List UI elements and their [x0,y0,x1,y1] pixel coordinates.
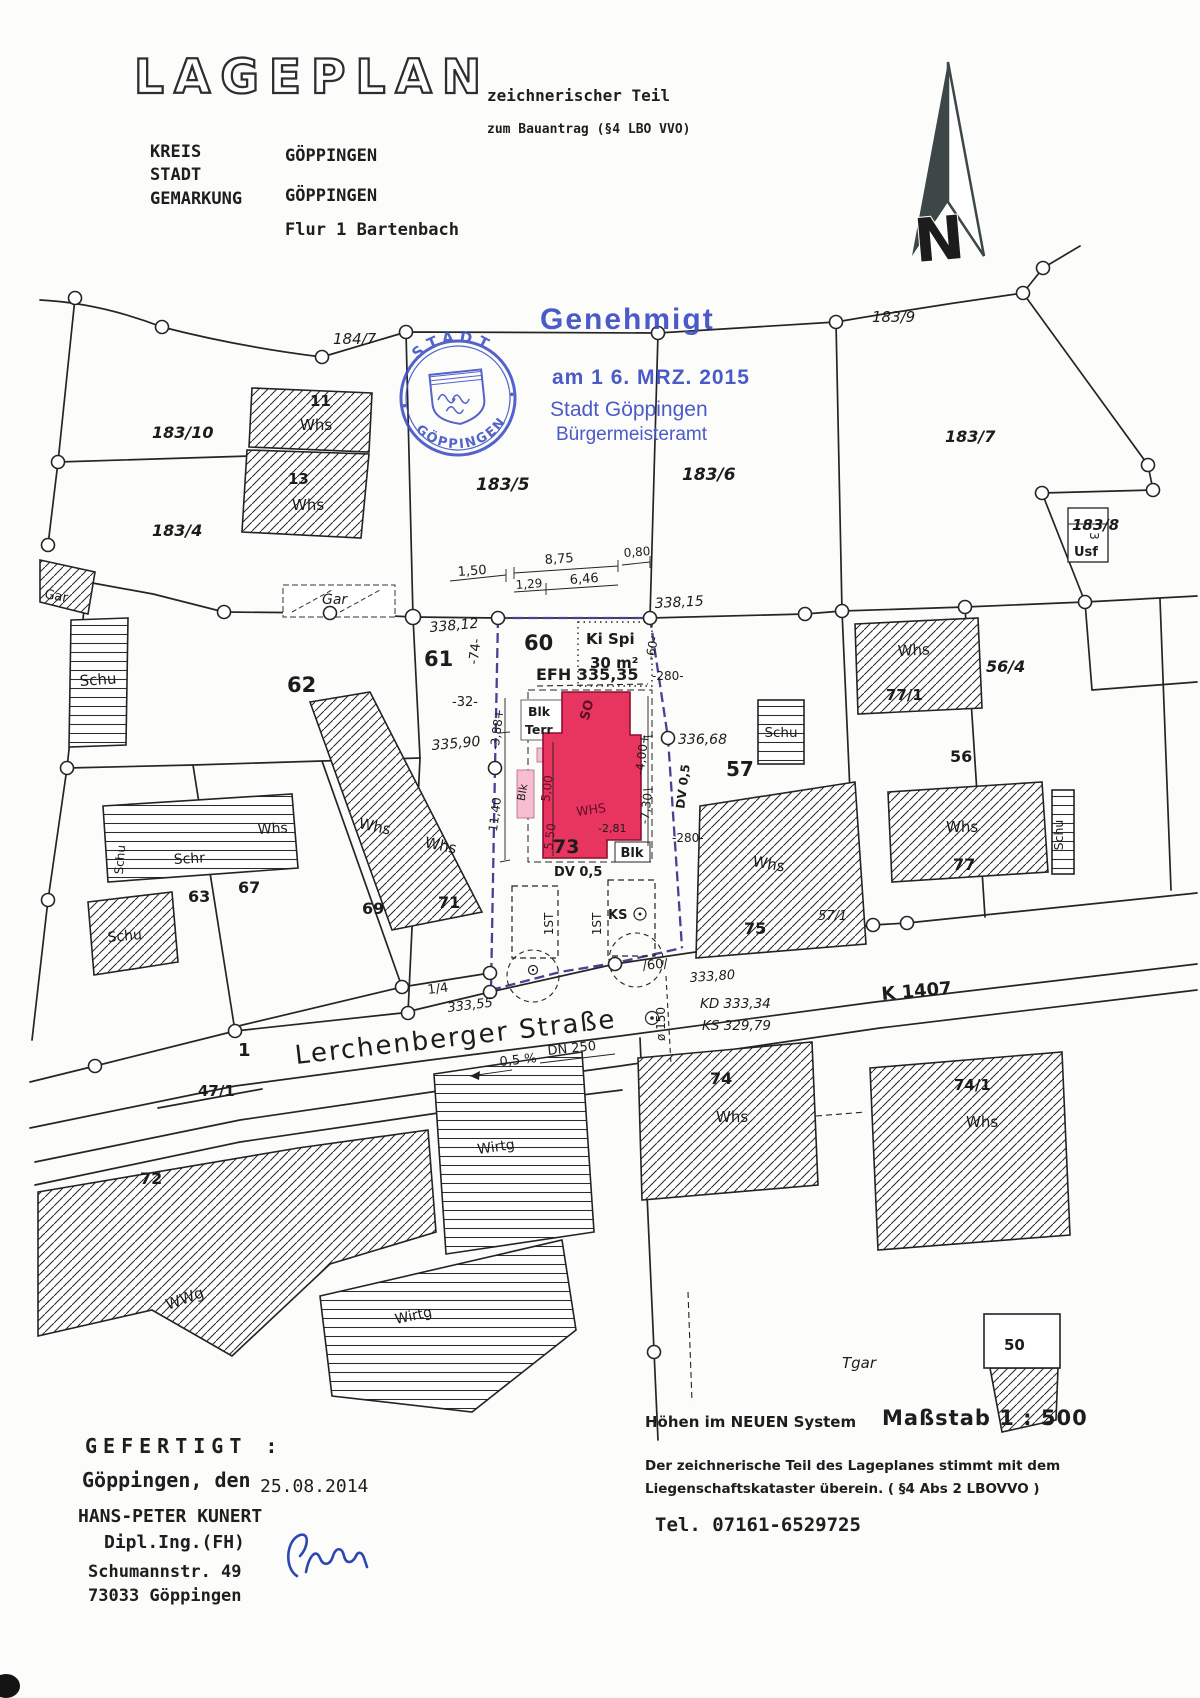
schu-label: Schu [79,669,117,690]
schu-label: Schu [764,725,797,741]
dim-2-81: -2,81 [598,822,626,835]
parcel-74-label: 74 [710,1069,732,1088]
signature-stroke [288,1535,367,1576]
kispi-label: Ki Spi [586,630,635,648]
sheet-subtitle2: zum Bauantrag (§4 LBO VVO) [487,122,691,137]
phone-number: Tel. 07161-6529725 [655,1514,861,1536]
prepared-qualification: Dipl.Ing.(FH) [104,1532,245,1553]
ks-label: KS [608,908,627,923]
prepared-city: 73033 Göppingen [88,1586,242,1606]
height-335-90: 335,90 [431,734,481,754]
parcel-1-label: 1 [238,1040,251,1061]
city-seal: STADT GÖPPINGEN [394,322,521,460]
storey-1st-label: 1ST [542,912,556,935]
scan-corner-mark [0,1674,20,1698]
seal-bottom-text: GÖPPINGEN [412,413,513,457]
dim-280: -280- [652,669,684,683]
whs-label: Whs [716,1108,748,1126]
usf-3-label: 3 [1087,532,1101,540]
dim-74: -74- [467,637,485,665]
dim-1-50: 1,50 [457,563,487,580]
prepared-place-date-label: Göppingen, den [82,1468,251,1492]
prepared-date: 25.08.2014 [260,1476,368,1497]
parcel-1-4-label: 1/4 [427,981,450,998]
lageplan-sheet: 184/7 183/9 183/10 183/4 183/5 183/6 183… [0,0,1200,1698]
whs-label: Whs [946,818,978,836]
dim-11-40: 11,40 [486,797,504,833]
parcel-184-7-label: 184/7 [333,330,377,348]
heights-note: Höhen im NEUEN System [645,1413,856,1431]
schr-label: Schr [173,850,205,868]
parcel-50-label: 50 [1004,1336,1025,1354]
schu-label: Schu [1051,820,1066,851]
stamp-approved: Genehmigt [540,303,715,337]
schu-label: Schu [112,844,129,875]
parcel-71-label: 71 [438,893,460,912]
height-336-68: 336,68 [678,732,727,748]
prepared-street: Schumannstr. 49 [88,1562,242,1582]
height-338-12: 338,12 [429,616,479,636]
kd-invert-label: KD 333,34 [700,996,771,1012]
hatched-buildings [38,388,1108,1432]
flur-value: Flur 1 Bartenbach [285,220,459,240]
height-333-80: 333,80 [689,968,735,986]
prepared-name: HANS-PETER KUNERT [78,1506,262,1527]
parcel-183-6-label: 183/6 [682,465,736,485]
parcel-74-1-label: 74/1 [954,1076,991,1094]
parcel-57-label: 57 [726,757,754,781]
schu-label: Schu [107,927,143,946]
scale-label: Maßstab 1 : 500 [882,1406,1088,1430]
house-13-label: 13 [288,470,309,488]
whs-label: Whs [897,640,930,660]
parcel-61-label: 61 [424,647,453,671]
dim-1-29: 1,29 [515,576,543,592]
kreis-label: KREIS [150,142,201,162]
parcel-77-label: 77 [953,855,975,874]
stamp-date: am 1 6. MRZ. 2015 [552,366,750,390]
dv-0-5-label: DV 0,5 [554,865,602,880]
whs-label: Whs [300,416,332,434]
dim-3-88: -3,88+ [488,708,507,751]
dia-150-label: ø 150 [654,1007,668,1041]
parcel-183-4-label: 183/4 [152,521,202,540]
whs-label: Whs [966,1113,998,1131]
stadt-label: STADT [150,165,201,185]
gemarkung-value: GÖPPINGEN [285,186,377,206]
building-wirtg-upper [434,1052,594,1254]
parcel-56-4-label: 56/4 [986,657,1025,676]
parcel-183-9-label: 183/9 [872,308,915,326]
dn250-label: DN 250 [547,1039,597,1059]
building-wirtg-lower [320,1240,576,1412]
house-11-label: 11 [310,392,331,410]
sheet-title: LAGEPLAN [134,50,491,105]
building-whs-67 [103,794,298,882]
seal-top-text: STADT [407,324,498,364]
svg-text:STADT: STADT [407,324,498,364]
tgar-label: Tgar [842,1354,877,1372]
north-letter: N [911,203,967,277]
stamp-authority: Stadt Göppingen [550,398,708,422]
terr-label: Terr [525,722,554,737]
parcel-69-label: 69 [362,899,384,918]
svg-text:GÖPPINGEN: GÖPPINGEN [412,413,513,457]
parcel-77-1-label: 77/1 [886,686,923,704]
whs-label: Whs [257,820,288,838]
parcel-183-10-label: 183/10 [152,423,214,442]
building-whs-13 [242,450,369,538]
blk-label: Blk [620,846,643,861]
north-arrow-icon: N [911,62,984,277]
kreis-value: GÖPPINGEN [285,146,377,166]
kataster-statement-1: Der zeichnerische Teil des Lageplanes st… [645,1458,1060,1474]
parcel-56-label: 56 [950,747,972,766]
dim-6-46: 6,46 [569,571,599,588]
parcel-60-label: 60 [524,631,553,655]
parcel-63-label: 63 [188,887,210,906]
usf-label: Usf [1074,545,1098,560]
dv-0-5-label: DV 0,5 [673,763,692,809]
efh-height-label: EFH 335,35 [536,665,639,684]
parcel-47-1-label: 47/1 [198,1082,235,1100]
whs-label: Whs [292,496,324,514]
blk-label: Blk [528,704,551,719]
height-333-55: 333,55 [447,996,494,1016]
storey-1st-label: 1ST [590,912,604,935]
dim-0-80: 0,80 [623,544,651,560]
parcel-183-7-label: 183/7 [945,427,996,446]
gar-label: Gar [322,592,348,608]
prepared-label: GEFERTIGT : [85,1434,283,1458]
parcel-57-1-label: 57/1 [818,909,847,924]
parcel-75-label: 75 [744,919,766,938]
dim-60: -60- [643,635,661,661]
dim-32: -32- [452,695,478,710]
ks-invert-label: KS 329,79 [702,1018,771,1034]
sheet-subtitle: zeichnerischer Teil [487,86,670,105]
parcel-73-label: 73 [553,836,579,858]
dim-60-slash: /60/ [642,956,669,974]
height-338-15: 338,15 [654,593,704,612]
dim-280: -280- [672,831,704,845]
parcel-62-label: 62 [287,673,316,697]
road-k1407-label: K 1407 [881,978,953,1005]
kataster-statement-2: Liegenschaftskataster überein. ( §4 Abs … [645,1481,1040,1497]
parcel-183-5-label: 183/5 [476,475,530,495]
parcel-72-label: 72 [140,1169,162,1188]
stamp-office: Bürgermeisteramt [556,424,707,446]
gemarkung-label: GEMARKUNG [150,189,242,209]
dim-8-75: 8,75 [544,551,574,568]
parcel-67-label: 67 [238,878,260,897]
